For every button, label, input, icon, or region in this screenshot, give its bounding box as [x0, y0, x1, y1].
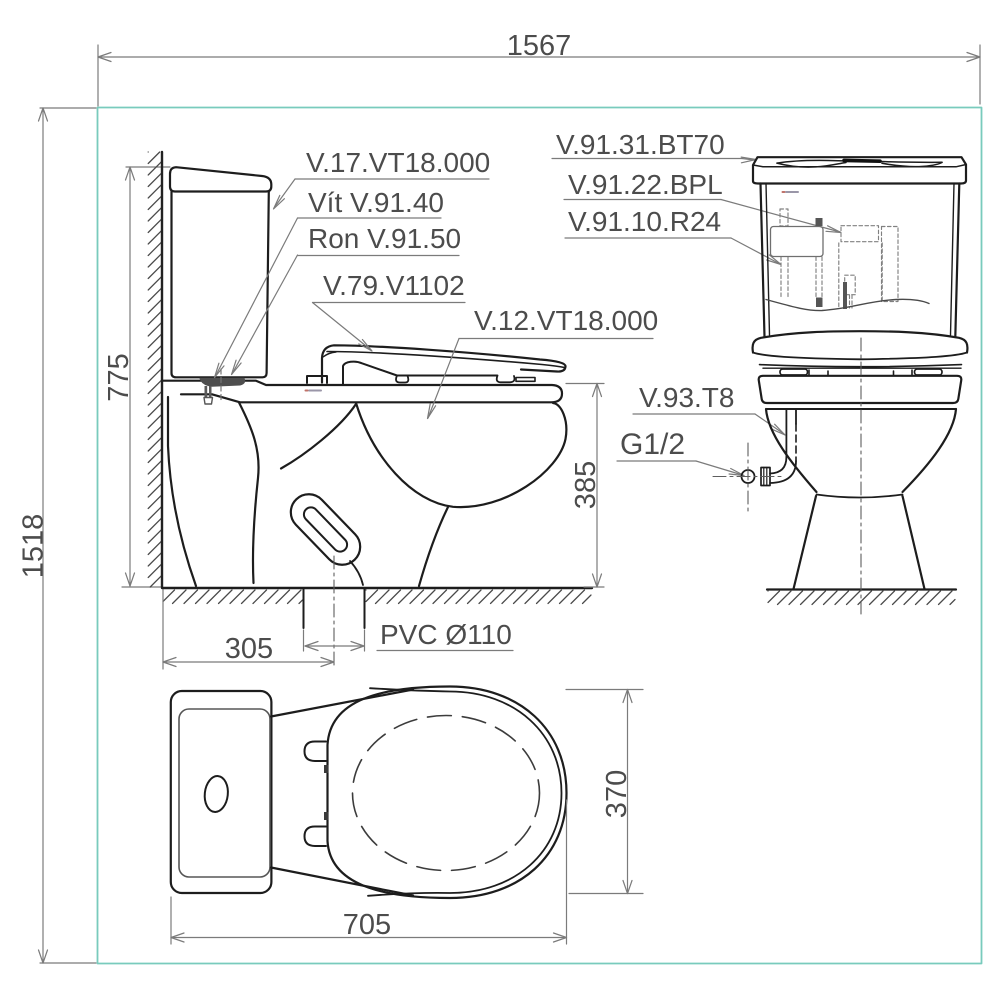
svg-text:775: 775 — [103, 353, 135, 401]
svg-text:Ron V.91.50: Ron V.91.50 — [308, 223, 461, 254]
svg-text:Vít V.91.40: Vít V.91.40 — [308, 187, 444, 218]
svg-text:V.93.T8: V.93.T8 — [639, 382, 734, 413]
svg-text:305: 305 — [225, 633, 273, 665]
svg-text:370: 370 — [601, 770, 633, 818]
svg-text:G1/2: G1/2 — [620, 428, 685, 461]
svg-text:V.91.10.R24: V.91.10.R24 — [568, 206, 721, 237]
svg-text:V.12.VT18.000: V.12.VT18.000 — [474, 305, 658, 336]
svg-text:PVC Ø110: PVC Ø110 — [380, 619, 512, 650]
svg-text:705: 705 — [343, 909, 391, 941]
svg-text:1518: 1518 — [18, 514, 50, 579]
svg-text:385: 385 — [570, 461, 602, 509]
svg-text:V.91.31.BT70: V.91.31.BT70 — [556, 129, 725, 160]
svg-text:V.17.VT18.000: V.17.VT18.000 — [306, 147, 490, 178]
svg-text:V.79.V1102: V.79.V1102 — [323, 270, 465, 301]
svg-text:V.91.22.BPL: V.91.22.BPL — [568, 169, 723, 200]
svg-text:1567: 1567 — [507, 30, 572, 62]
